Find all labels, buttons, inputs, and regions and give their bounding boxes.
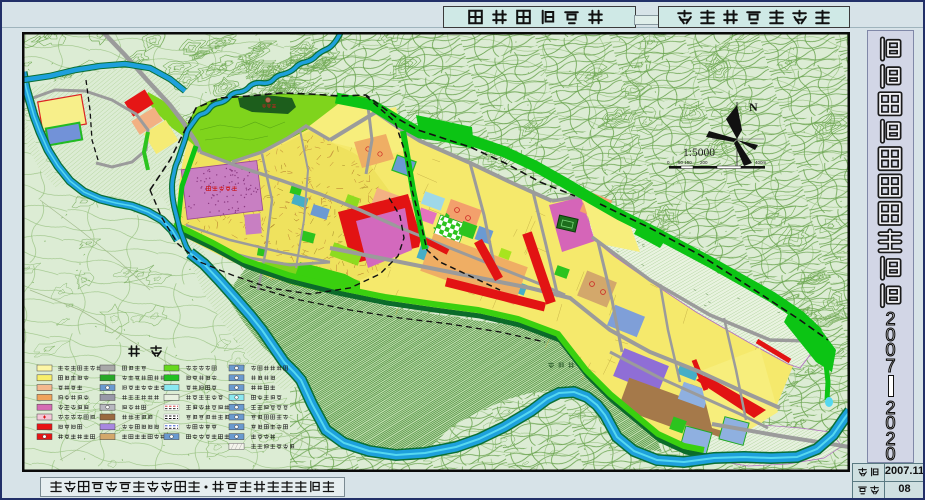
svg-text:200: 200 [700, 160, 708, 165]
svg-text:400m: 400m [755, 160, 767, 165]
svg-text:N: N [749, 100, 758, 114]
svg-text:50 100: 50 100 [678, 160, 692, 165]
svg-text:1:5000: 1:5000 [683, 147, 715, 159]
